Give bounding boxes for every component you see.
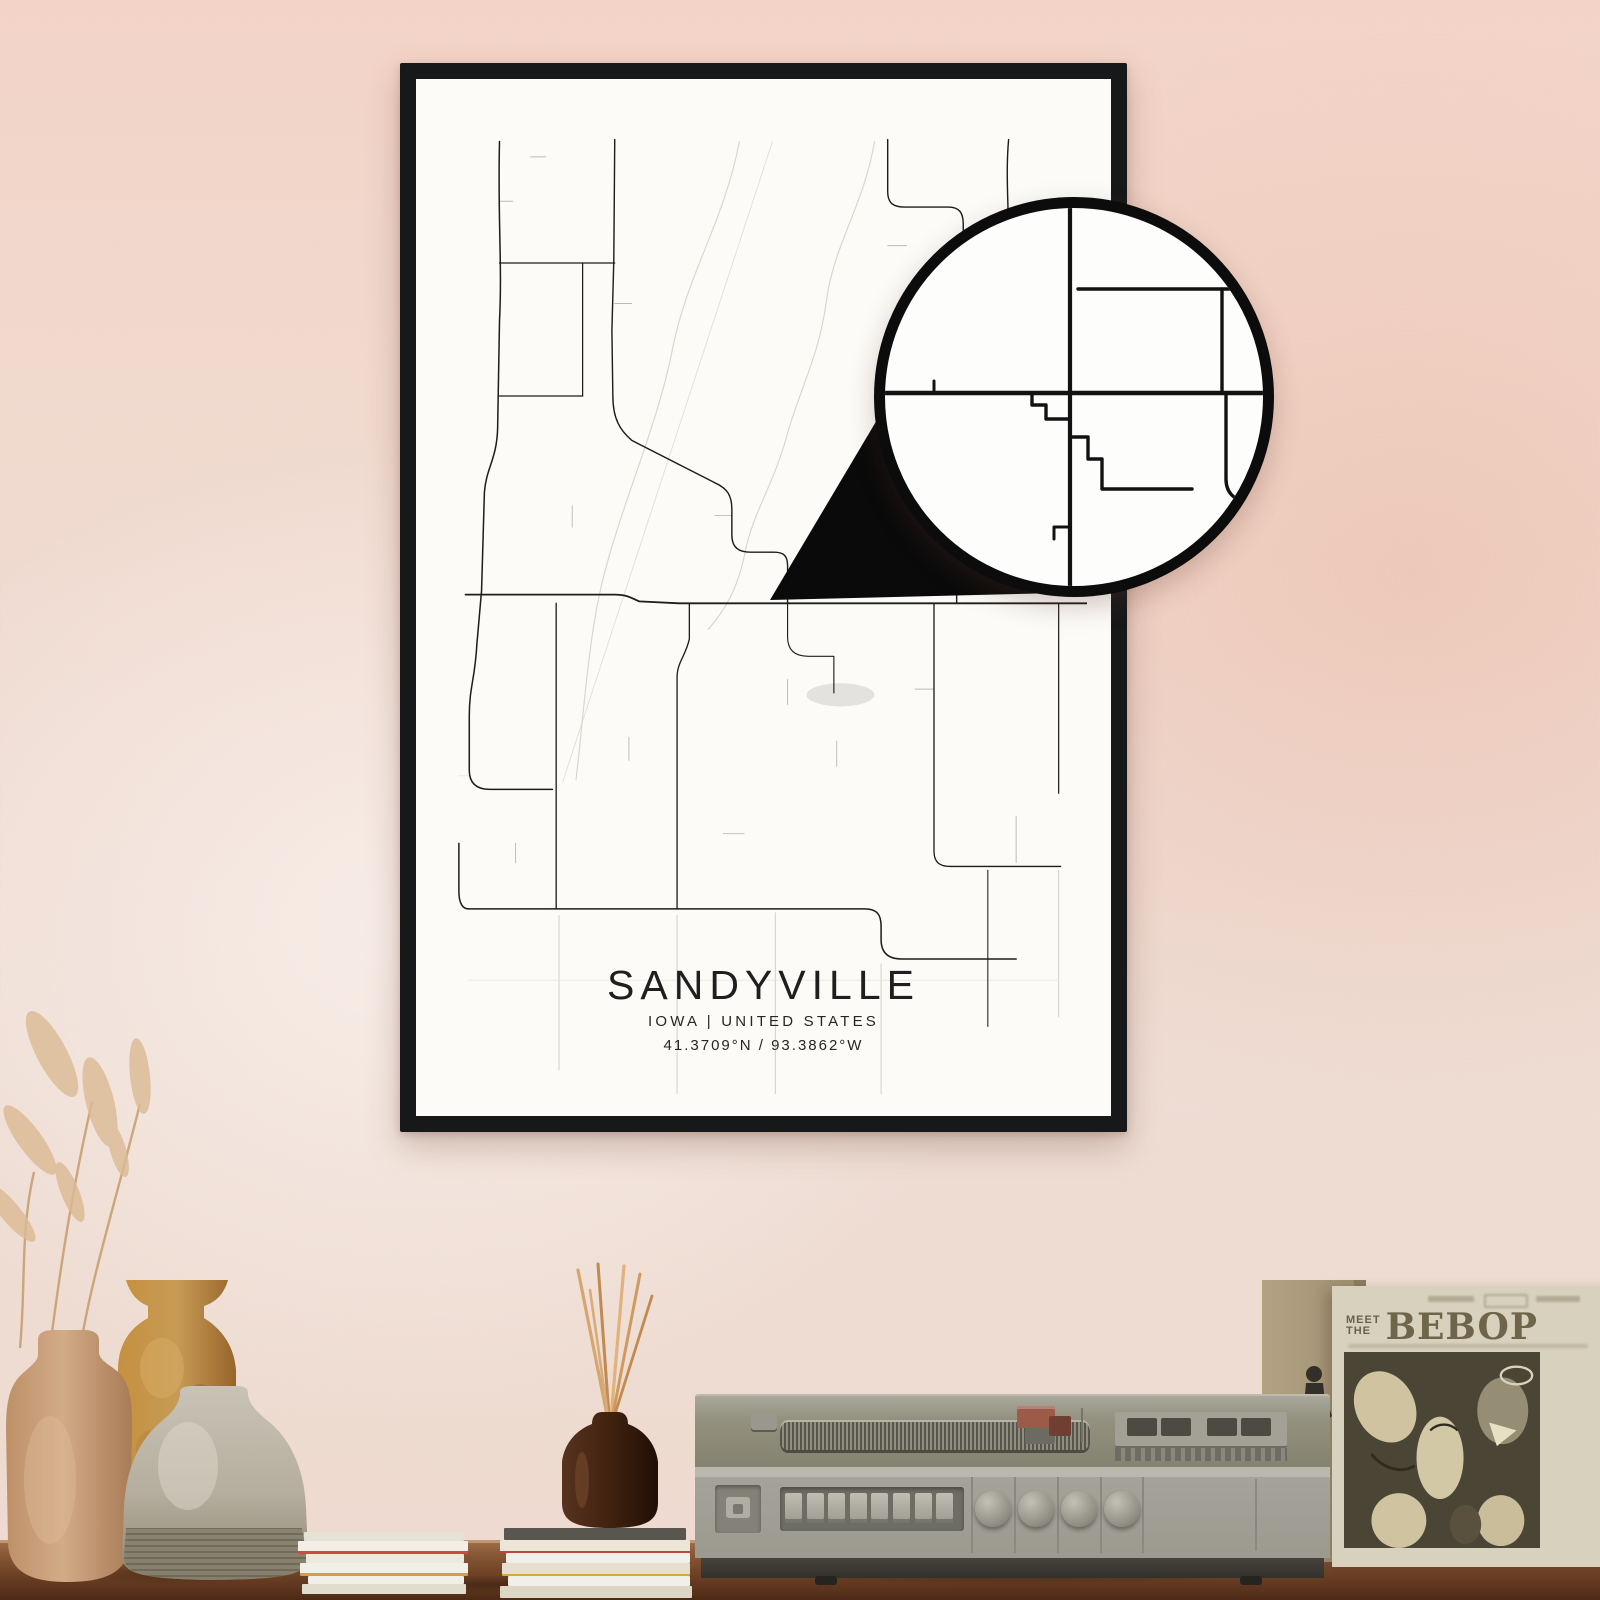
sleeve-bottom-edge: [1332, 1555, 1600, 1567]
tone-knob: [1018, 1491, 1054, 1527]
preset-button: [785, 1493, 802, 1523]
vent-slot: [1241, 1418, 1271, 1436]
magnifier-circle-icon: [874, 197, 1274, 597]
vent-slot: [1161, 1418, 1191, 1436]
power-button-recess: [715, 1485, 761, 1533]
balance-knob: [1061, 1491, 1097, 1527]
magazine-stack: [298, 1532, 470, 1594]
player-foot: [815, 1576, 837, 1585]
player-right-panel: [1115, 1412, 1287, 1446]
poster-coordinates: 41.3709°N / 93.3862°W: [416, 1037, 1111, 1054]
preset-button: [850, 1493, 867, 1523]
tonearm-headshell: [1049, 1416, 1071, 1436]
knob-section: [971, 1467, 1143, 1558]
record-player: [695, 1382, 1330, 1586]
bebop-record-sleeve: MEET THE BEBOP: [1332, 1286, 1600, 1567]
tonearm-spindle: [1081, 1408, 1083, 1442]
sleeve-subtitle-smudge: [1348, 1344, 1588, 1348]
incense-reeds: [578, 1264, 652, 1430]
tan-vase: [2, 1330, 134, 1586]
magnifier-map-detail: [874, 197, 1274, 597]
player-control-strip: [1115, 1448, 1287, 1461]
player-base: [701, 1558, 1324, 1578]
sleeve-small-print: [1536, 1296, 1580, 1302]
reed-diffuser: [540, 1262, 680, 1554]
poster-title-block: SANDYVILLE IOWA | UNITED STATES 41.3709°…: [416, 963, 1111, 1054]
platter-lever: [751, 1412, 777, 1430]
preset-button-row: [780, 1487, 964, 1531]
poster-title: SANDYVILLE: [416, 963, 1111, 1007]
preset-button: [936, 1493, 953, 1523]
preset-button: [893, 1493, 910, 1523]
preset-button: [915, 1493, 932, 1523]
sleeve-word-the: THE: [1346, 1326, 1381, 1337]
sleeve-header: MEET THE BEBOP: [1332, 1286, 1600, 1352]
vent-slot: [1127, 1418, 1157, 1436]
preset-button: [807, 1493, 824, 1523]
sleeve-title-album: BEBOP: [1386, 1310, 1538, 1344]
sleeve-title-small: MEET THE: [1346, 1315, 1381, 1337]
power-button: [726, 1497, 750, 1521]
room-scene: { "poster": { "title": "SANDYVILLE", "su…: [0, 0, 1600, 1600]
volume-knob: [975, 1491, 1011, 1527]
preset-button: [871, 1493, 888, 1523]
gray-vase: [118, 1386, 310, 1586]
sleeve-artwork: [1344, 1352, 1540, 1548]
player-front-face: [695, 1467, 1330, 1558]
preset-button: [828, 1493, 845, 1523]
player-foot: [1240, 1576, 1262, 1585]
sleeve-small-print: [1428, 1296, 1474, 1302]
poster-subtitle: IOWA | UNITED STATES: [416, 1013, 1111, 1030]
vent-slot: [1207, 1418, 1237, 1436]
tuning-knob: [1104, 1491, 1140, 1527]
